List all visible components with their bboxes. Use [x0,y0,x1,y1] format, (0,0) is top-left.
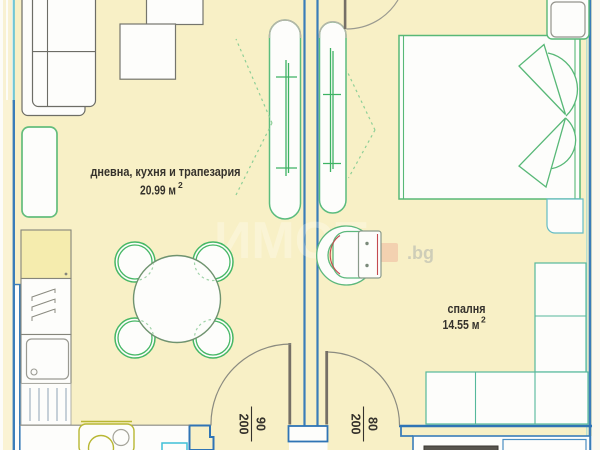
svg-text:90: 90 [254,417,268,431]
svg-text:дневна, кухня и трапезария: дневна, кухня и трапезария [91,164,241,179]
svg-text:80: 80 [366,417,380,431]
svg-text:200: 200 [349,414,363,435]
svg-text:спалня: спалня [448,301,486,316]
svg-text:14.55 м: 14.55 м [443,317,480,332]
svg-text:200: 200 [237,414,251,435]
svg-text:20.99 м: 20.99 м [140,183,176,198]
svg-text:2: 2 [481,315,486,325]
svg-text:2: 2 [178,180,183,190]
svg-text:.bg: .bg [407,243,434,263]
